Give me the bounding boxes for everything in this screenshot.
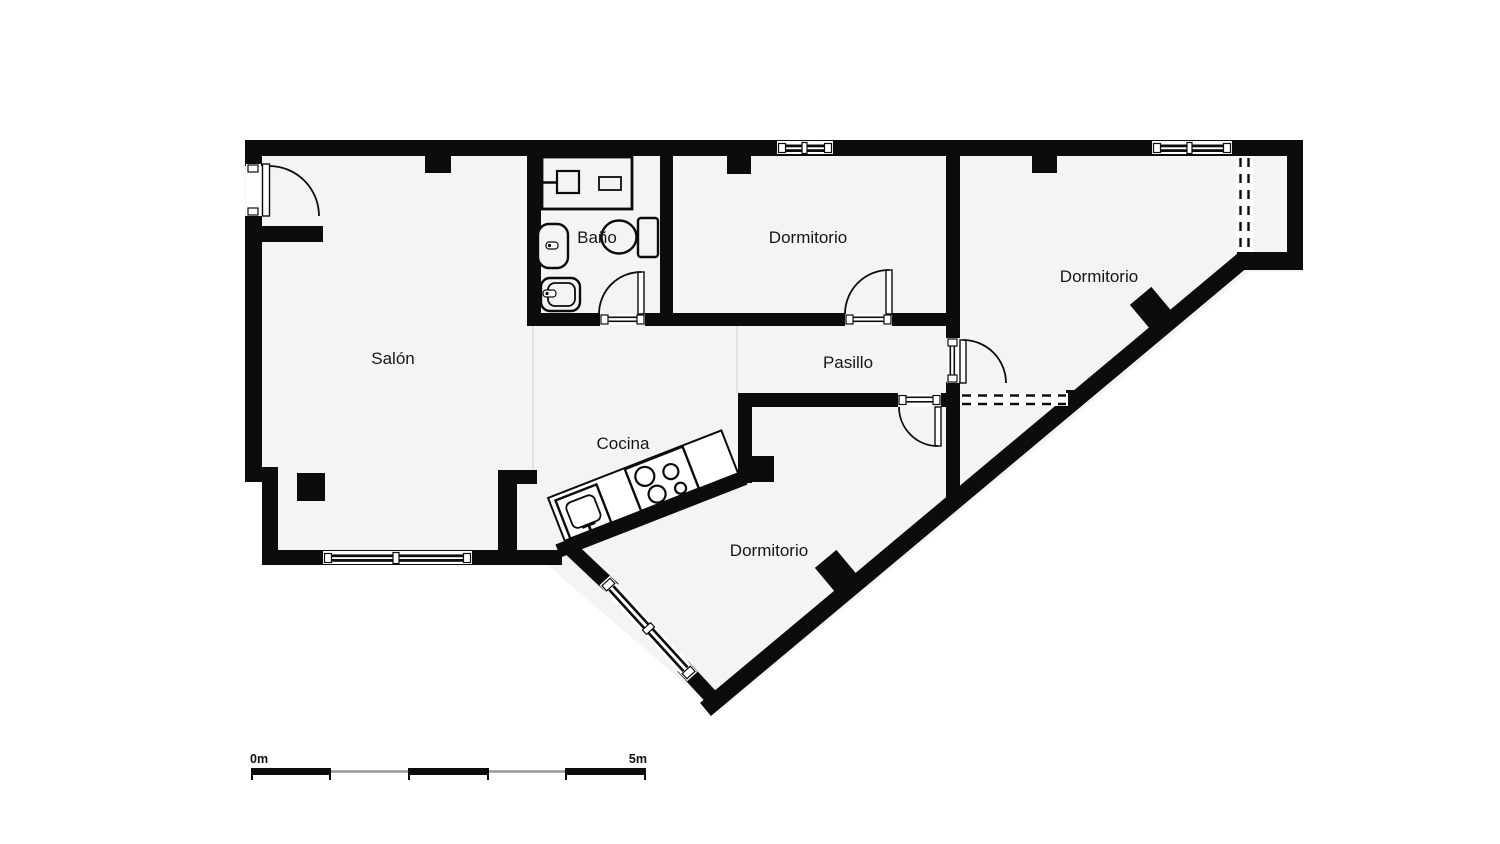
wall-segment — [1287, 140, 1303, 270]
column-pier — [727, 156, 751, 174]
scale-label-start: 0m — [250, 752, 268, 766]
column-pier — [425, 156, 451, 173]
wall-segment — [738, 393, 898, 407]
wall-stub — [262, 226, 323, 242]
wall-stub — [517, 470, 537, 484]
room-label-pasillo: Pasillo — [823, 353, 873, 372]
wall-segment — [660, 140, 673, 326]
wall-stub — [752, 456, 774, 482]
wall-segment — [498, 470, 517, 565]
door-leaf — [886, 270, 892, 314]
room-label-dormitorio-top: Dormitorio — [769, 228, 847, 247]
wall-segment — [645, 313, 845, 326]
room-label-bano: Baño — [577, 228, 617, 247]
window-right-bedroom — [1152, 141, 1232, 154]
room-fill-layer — [245, 140, 1303, 712]
washbasin-icon — [541, 278, 580, 311]
door-leaf — [263, 164, 270, 216]
scale-bar: 0m 5m — [250, 752, 647, 780]
wall-segment — [245, 216, 262, 482]
terrace-opening — [1236, 156, 1253, 252]
shower-icon — [541, 157, 632, 209]
wall-segment — [946, 140, 960, 338]
wall-segment — [245, 140, 262, 166]
wall-segment — [527, 313, 600, 326]
room-label-cocina: Cocina — [597, 434, 650, 453]
door-leaf — [935, 407, 941, 446]
column-pier — [1032, 156, 1057, 173]
window-salon — [323, 551, 472, 564]
wall-segment — [738, 393, 752, 483]
room-label-salon: Salón — [371, 349, 414, 368]
room-label-dormitorio-right: Dormitorio — [1060, 267, 1138, 286]
column-pillar — [297, 473, 325, 501]
scale-label-end: 5m — [629, 752, 647, 766]
floor-plan-page: Salón Baño Dormitorio Dormitorio Pasillo… — [0, 0, 1500, 844]
door-leaf — [638, 272, 644, 314]
window-top-bedroom — [777, 141, 833, 154]
wall-segment — [245, 140, 1303, 156]
floor-plan-canvas: Salón Baño Dormitorio Dormitorio Pasillo… — [0, 0, 1500, 844]
wall-segment — [941, 393, 960, 407]
wall-cap — [1066, 390, 1081, 407]
bidet-icon — [538, 224, 568, 268]
door-leaf — [960, 340, 966, 383]
apartment-interior — [245, 140, 1303, 712]
room-label-dormitorio-bottom: Dormitorio — [730, 541, 808, 560]
